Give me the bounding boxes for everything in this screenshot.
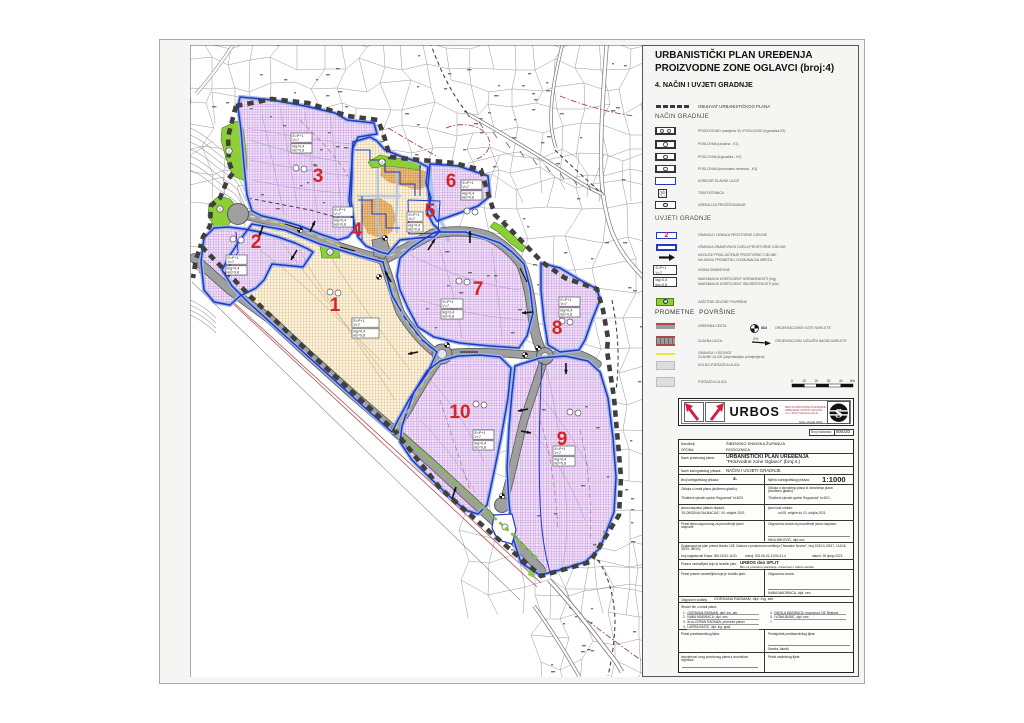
svg-text:kis=0,8: kis=0,8 xyxy=(409,228,421,232)
svg-text:V=7: V=7 xyxy=(475,435,482,439)
svg-text:kis=0,8: kis=0,8 xyxy=(228,271,240,275)
svg-text:9: 9 xyxy=(557,429,568,450)
svg-text:kis=0,8: kis=0,8 xyxy=(293,149,305,153)
svg-text:V=7: V=7 xyxy=(409,217,416,221)
svg-text:0: 0 xyxy=(791,379,793,383)
svg-text:V=7: V=7 xyxy=(335,212,342,216)
svg-text:20: 20 xyxy=(815,379,819,383)
svg-text:kis=0,8: kis=0,8 xyxy=(475,446,487,450)
svg-text:V=7: V=7 xyxy=(555,451,562,455)
svg-text:z: z xyxy=(219,207,221,212)
svg-text:40: 40 xyxy=(839,379,843,383)
svg-text:7: 7 xyxy=(473,279,484,300)
svg-text:kis=0,8: kis=0,8 xyxy=(555,462,567,466)
svg-text:kis=0,8: kis=0,8 xyxy=(354,334,366,338)
svg-text:z: z xyxy=(228,149,230,154)
svg-text:1: 1 xyxy=(330,295,341,316)
svg-text:10: 10 xyxy=(449,402,470,423)
svg-text:V=7: V=7 xyxy=(561,302,568,306)
svg-text:2: 2 xyxy=(251,232,262,253)
svg-text:50m: 50m xyxy=(850,379,855,383)
svg-text:V=7: V=7 xyxy=(293,138,300,142)
svg-text:kis=0,8: kis=0,8 xyxy=(443,315,455,319)
svg-text:10: 10 xyxy=(802,379,806,383)
svg-text:kis=0,8: kis=0,8 xyxy=(561,313,573,317)
svg-text:z: z xyxy=(329,250,331,255)
svg-text:V=7: V=7 xyxy=(463,185,470,189)
svg-text:30: 30 xyxy=(827,379,831,383)
svg-text:kis=0,8: kis=0,8 xyxy=(335,223,347,227)
svg-text:6: 6 xyxy=(446,171,457,192)
svg-text:z: z xyxy=(381,160,383,165)
svg-text:3: 3 xyxy=(313,166,324,187)
svg-text:4: 4 xyxy=(352,220,363,241)
svg-text:S: S xyxy=(835,405,842,420)
svg-text:kis=0,8: kis=0,8 xyxy=(463,196,475,200)
svg-text:V=7: V=7 xyxy=(443,304,450,308)
svg-text:5: 5 xyxy=(425,201,436,222)
svg-text:V=7: V=7 xyxy=(228,260,235,264)
svg-text:8: 8 xyxy=(552,318,563,339)
svg-text:V=7: V=7 xyxy=(354,323,361,327)
